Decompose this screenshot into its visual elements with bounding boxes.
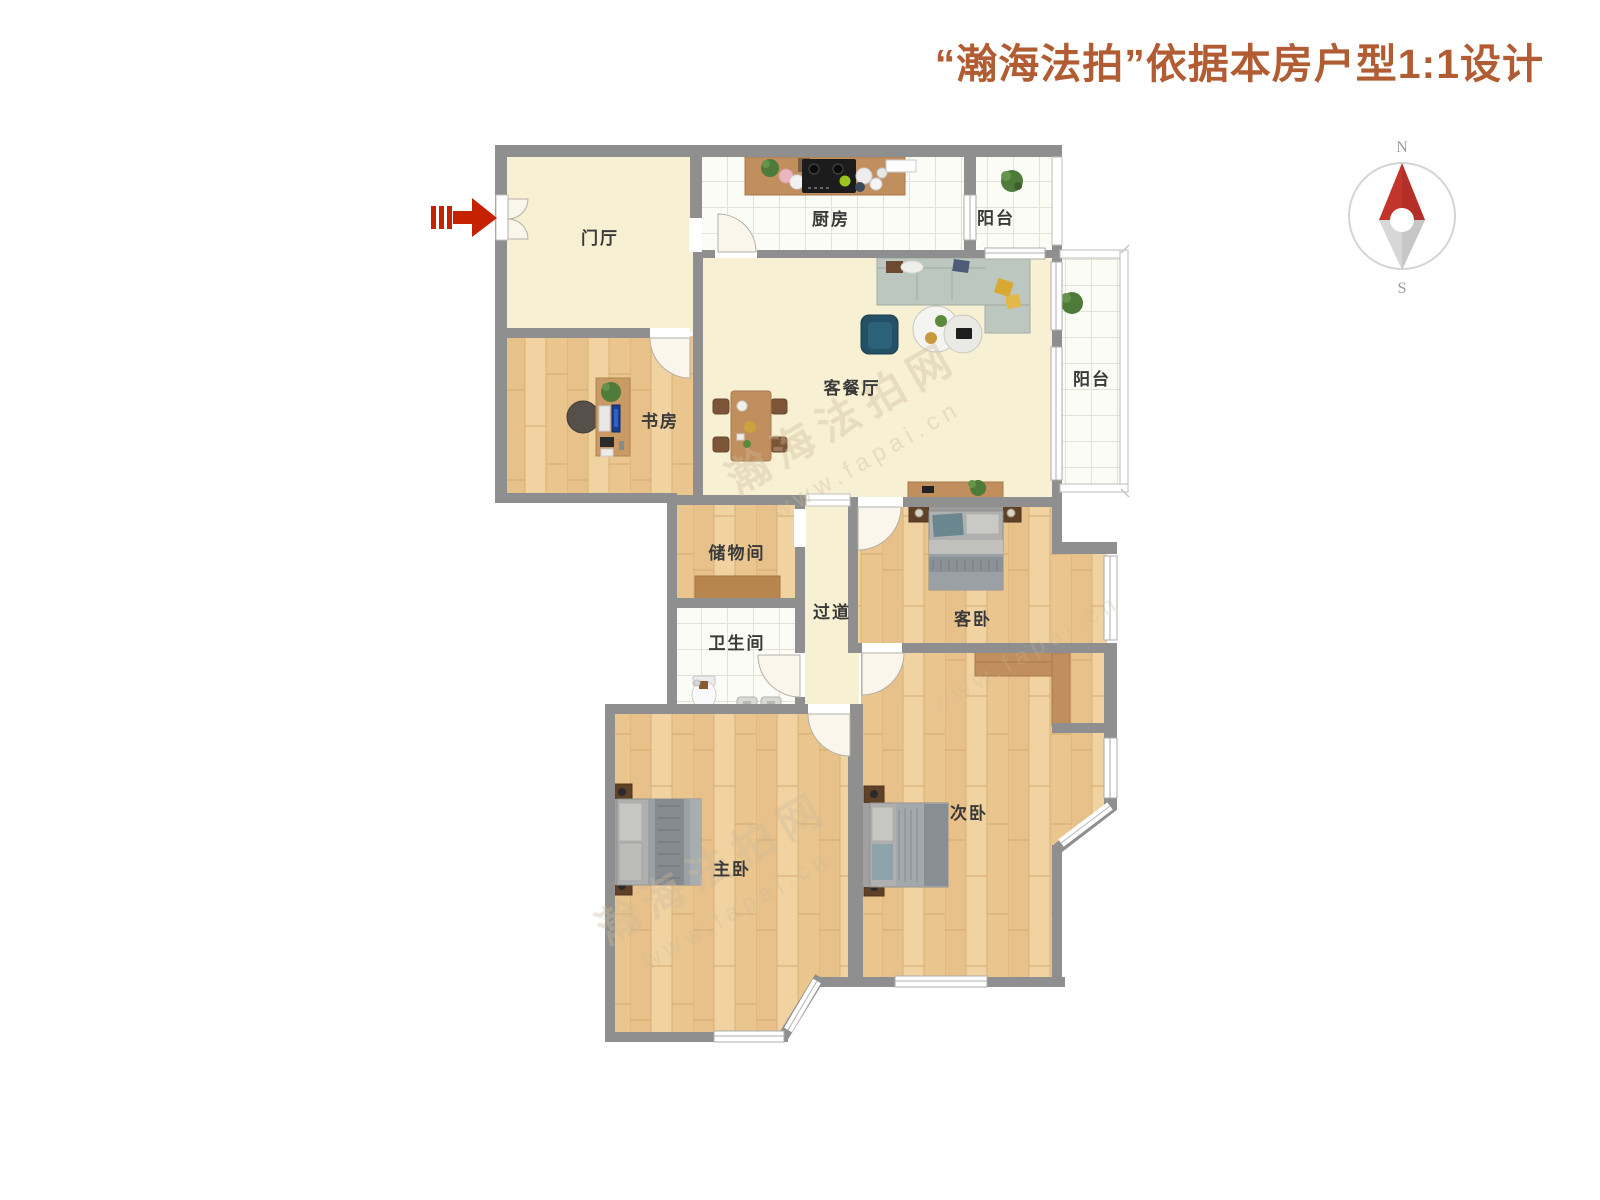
room-label-living-dining: 客餐厅 [823, 378, 881, 398]
room-label-hallway: 过道 [813, 602, 851, 622]
pillow [932, 513, 963, 537]
window [985, 248, 1045, 259]
kitchen-counter [745, 157, 916, 195]
room-label-storage: 储物间 [709, 543, 766, 563]
pillow-brown [886, 261, 903, 273]
pillow [619, 803, 642, 841]
pillow-white [901, 261, 923, 273]
study-door-opening [650, 328, 690, 338]
floorplan-page: “瀚海法拍”依据本房户型1:1设计 [0, 0, 1600, 1200]
pillow [619, 843, 642, 881]
pillow [872, 807, 893, 841]
master-door-opening [808, 704, 850, 714]
tv-cabinet [908, 480, 1003, 499]
compass-north-label: N [1396, 139, 1408, 156]
table-plant [935, 315, 947, 327]
compass-south-label: S [1398, 280, 1407, 297]
room-label-entry-hall: 门厅 [581, 228, 619, 248]
kitchen-sink [886, 160, 916, 172]
room-label-second-bedroom: 次卧 [950, 803, 988, 823]
room-label-study: 书房 [641, 411, 679, 431]
window [714, 1031, 784, 1042]
printer [600, 437, 614, 447]
entry-door-opening [496, 195, 508, 240]
pillow [966, 514, 999, 534]
entry-kitchen-opening [689, 218, 702, 252]
guest-door-opening [858, 497, 903, 507]
window [1051, 347, 1062, 480]
storage-cabinet [695, 576, 780, 601]
window [964, 195, 976, 240]
dining-chair [713, 437, 729, 452]
room-label-guest-bedroom: 客卧 [953, 609, 992, 629]
window [895, 976, 987, 987]
dining-chair [713, 399, 729, 414]
entry-arrow-icon [431, 198, 497, 237]
window [1104, 738, 1117, 798]
room-label-balcony-east: 阳台 [1073, 369, 1111, 389]
balcony-east-plant [1061, 292, 1083, 314]
cooktop-knob [840, 176, 851, 187]
balcony-north-plant [1001, 170, 1023, 192]
second-bed [861, 786, 948, 896]
room-label-kitchen: 厨房 [812, 209, 850, 229]
table-tray [956, 328, 972, 339]
compass-icon: N S [1349, 139, 1455, 297]
dining-chair [771, 399, 787, 414]
pillow-blue [952, 259, 970, 273]
room-label-bathroom: 卫生间 [709, 633, 766, 653]
armchair [861, 315, 898, 354]
room-label-balcony-north: 阳台 [977, 208, 1015, 228]
room-label-master-bedroom: 主卧 [713, 859, 751, 879]
second-door-opening [862, 643, 902, 653]
pillow [872, 844, 893, 880]
desk-chair [567, 401, 599, 433]
floorplan: 瀚海法拍网 www.fapai.cn 瀚海法拍网 www.fapai.cn ww… [0, 0, 1600, 1200]
desk-paper [599, 406, 610, 431]
window [1051, 262, 1062, 330]
